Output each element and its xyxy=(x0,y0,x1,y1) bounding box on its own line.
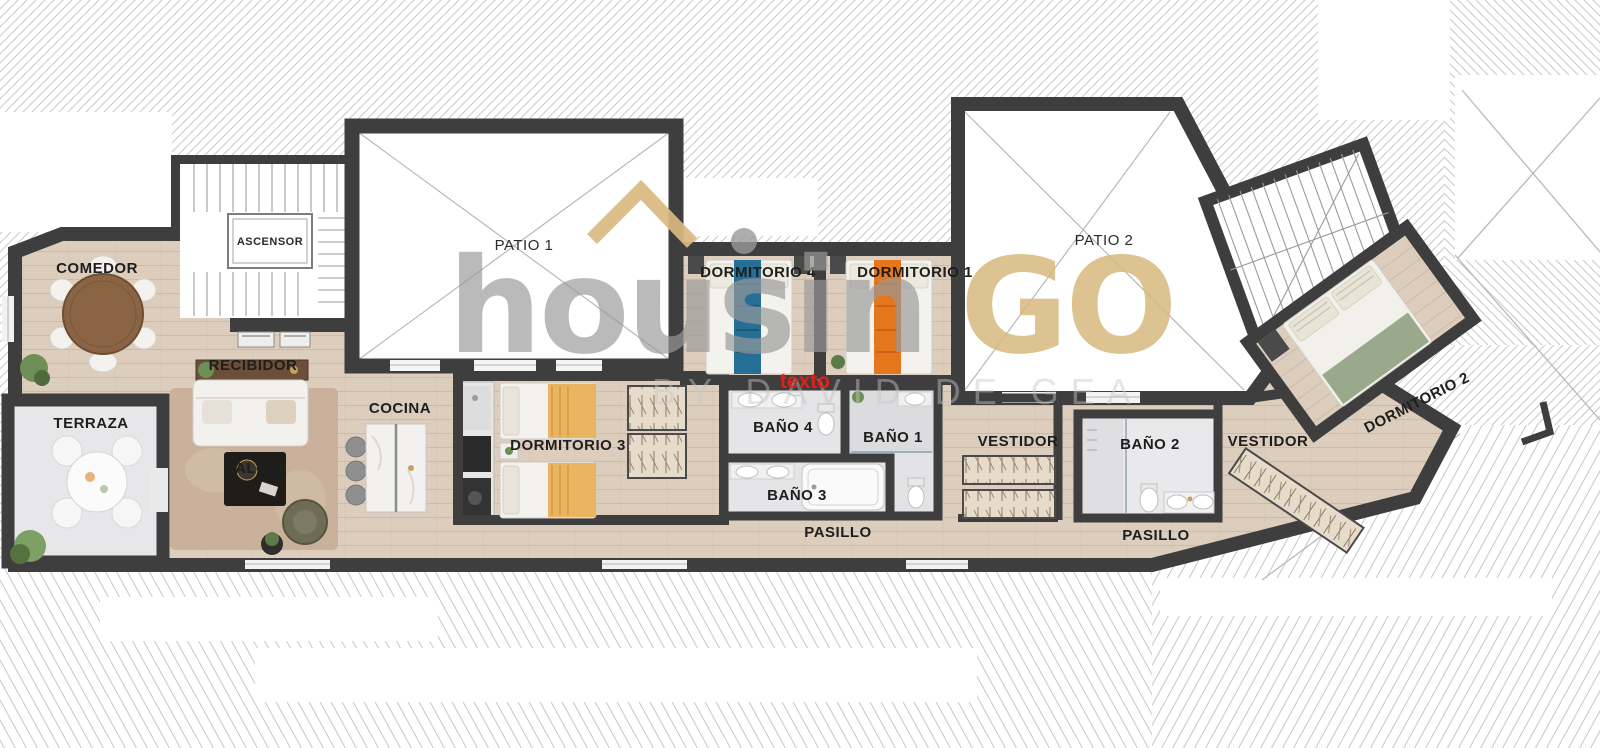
brand-word-gray: housin xyxy=(448,230,926,384)
room-label-dormitorio-3: DORMITORIO 3 xyxy=(510,437,626,454)
room-label-vestidor-1: VESTIDOR xyxy=(978,433,1059,450)
room-label-bano-1: BAÑO 1 xyxy=(863,428,923,446)
room-label-comedor: COMEDOR xyxy=(56,260,138,277)
double-vanity xyxy=(1164,492,1214,513)
sofa xyxy=(193,380,308,446)
terrace-door-opening xyxy=(150,468,168,512)
room-label-pasillo-2: PASILLO xyxy=(1122,527,1189,544)
recibidor-consoles xyxy=(238,332,310,347)
room-salon xyxy=(170,360,338,555)
room-label-terraza: TERRAZA xyxy=(53,415,128,432)
floorplan-svg: COMEDOR ASCENSOR PATIO 1 DORMITORIO 4 DO… xyxy=(0,0,1600,748)
room-bano-2 xyxy=(1078,414,1218,518)
room-label-cocina: COCINA xyxy=(369,400,431,417)
kitchen-island xyxy=(346,424,426,512)
room-label-ascensor: ASCENSOR xyxy=(237,236,303,248)
room-label-bano-2: BAÑO 2 xyxy=(1120,435,1180,453)
toilet xyxy=(1140,484,1158,512)
brand-word-gold: GO xyxy=(960,230,1175,384)
bed-single-1 xyxy=(500,383,596,439)
bed-single-2 xyxy=(500,462,596,518)
room-label-bano-3: BAÑO 3 xyxy=(767,486,827,504)
armchair xyxy=(283,500,327,544)
sink xyxy=(736,466,758,478)
room-label-pasillo-1: PASILLO xyxy=(804,524,871,541)
room-label-bano-4: BAÑO 4 xyxy=(753,418,813,436)
room-label-vestidor-2: VESTIDOR xyxy=(1228,433,1309,450)
placeholder-text: texto xyxy=(780,370,830,393)
wardrobe xyxy=(963,456,1055,484)
room-label-salon: SALÓN xyxy=(225,459,280,477)
sink xyxy=(767,466,789,478)
wardrobe xyxy=(963,490,1055,518)
toilet xyxy=(908,478,924,508)
floorplan-canvas: COMEDOR ASCENSOR PATIO 1 DORMITORIO 4 DO… xyxy=(0,0,1600,748)
shower xyxy=(1083,419,1123,513)
room-label-recibidor: RECIBIDOR xyxy=(209,357,298,374)
